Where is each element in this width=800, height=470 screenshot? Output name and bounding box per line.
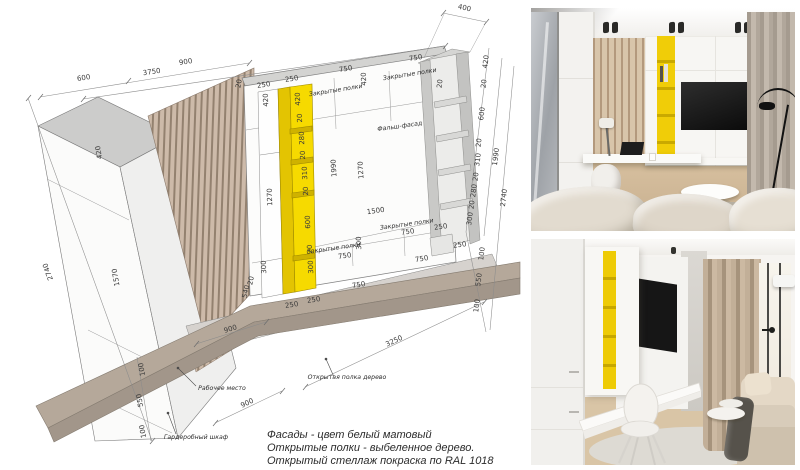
photo-living-room-front — [531, 8, 795, 231]
dimension-label: 1270 — [266, 188, 275, 206]
floor-lamp-head — [759, 102, 775, 110]
wall-lamp — [769, 327, 775, 333]
dimension-label: 420 — [360, 72, 368, 86]
dimension-label: 20 — [299, 150, 307, 159]
dimension-label: 20 — [472, 172, 481, 182]
note-open-shelves: Открытые полки - выбеленное дерево. — [267, 442, 523, 455]
part-label: Рабочее место — [198, 384, 246, 392]
note-ral: Открытый стеллаж покраска по RAL 1018 — [267, 455, 523, 468]
dimension-label: 20 — [468, 200, 477, 210]
dimension-label: 420 — [262, 93, 270, 107]
mug — [649, 153, 656, 161]
dimension-label: 1270 — [357, 161, 366, 179]
cabinet-seam — [531, 387, 583, 388]
dimension-label: 1990 — [491, 147, 501, 166]
part-label: Гардеробный шкаф — [164, 433, 229, 441]
desk-lamp — [599, 118, 614, 128]
book — [664, 64, 668, 82]
air-conditioner — [773, 275, 795, 287]
laptop — [620, 142, 644, 155]
spotlight-icon — [603, 22, 609, 34]
dimension-label: 600 — [304, 215, 312, 229]
dimension-label: 20 — [296, 113, 304, 122]
dimension-label: 300 — [465, 212, 475, 226]
desk-and-chair — [579, 379, 739, 465]
ceiling-spotlights — [603, 22, 621, 34]
dimension-label: 310 — [473, 153, 483, 167]
dimension-label: 20 — [234, 79, 243, 89]
dimension-label: 3750 — [142, 67, 161, 77]
dimension-label: 1990 — [330, 159, 339, 177]
tv-screen — [681, 82, 755, 130]
spotlight-icon — [612, 22, 618, 34]
cabinet-seam — [559, 78, 593, 79]
dimension-label: 280 — [298, 131, 306, 145]
drawing-svg: 3750400600900202502504201270300420202802… — [0, 0, 524, 470]
sofa-pillow — [744, 372, 772, 397]
dimension-label: 2740 — [499, 188, 509, 207]
dimension-label: 600 — [477, 107, 487, 121]
spotlight-icon — [671, 247, 676, 254]
spotlight-icon — [678, 22, 684, 34]
note-facades: Фасады - цвет белый матовый — [267, 429, 523, 442]
dimension-label: 20 — [475, 138, 484, 148]
dimension-label: 400 — [457, 3, 472, 14]
furniture-technical-drawing: 3750400600900202502504201270300420202802… — [0, 0, 524, 470]
photo-living-room-desk — [531, 239, 795, 465]
dimension-label: 20 — [302, 186, 310, 195]
dimension-label: 2740 — [41, 262, 55, 281]
dimension-label: 20 — [436, 79, 445, 89]
dimension-label: 280 — [469, 184, 479, 198]
cabinet-handle — [569, 411, 579, 413]
dimension-label: 300 — [307, 260, 315, 274]
dimension-label: 100 — [472, 299, 482, 313]
dimension-label: 600 — [76, 73, 90, 83]
book — [660, 66, 663, 82]
part-label: Открытая полка дерево — [308, 374, 387, 381]
dimension-label: 420 — [294, 92, 302, 106]
dimension-label: 100 — [477, 247, 487, 261]
spec-notes: Фасады - цвет белый матовый Открытые пол… — [267, 429, 523, 468]
dimension-label: 20 — [480, 79, 489, 89]
ceiling-spotlights — [669, 22, 687, 34]
dimension-label: 900 — [178, 57, 192, 67]
dimension-label: 540 — [241, 284, 252, 299]
dimension-label: 250 — [453, 240, 467, 250]
dimension-label: 3250 — [384, 334, 404, 349]
dimension-label: 550 — [474, 273, 484, 287]
mirror-reflection — [532, 22, 549, 222]
dimension-label: 420 — [481, 55, 491, 69]
spotlight-icon — [669, 22, 675, 34]
spotlight-icon — [735, 22, 741, 34]
wardrobe-wall — [531, 239, 585, 465]
cabinet-handle — [569, 371, 579, 373]
desk — [583, 154, 701, 163]
yellow-open-shelf — [603, 251, 616, 389]
dimension-label: 300 — [260, 260, 268, 274]
cabinet-seam — [531, 429, 583, 430]
yellow-open-shelf — [657, 36, 675, 162]
dimension-label: 310 — [301, 166, 309, 180]
page: 3750400600900202502504201270300420202802… — [0, 0, 800, 470]
